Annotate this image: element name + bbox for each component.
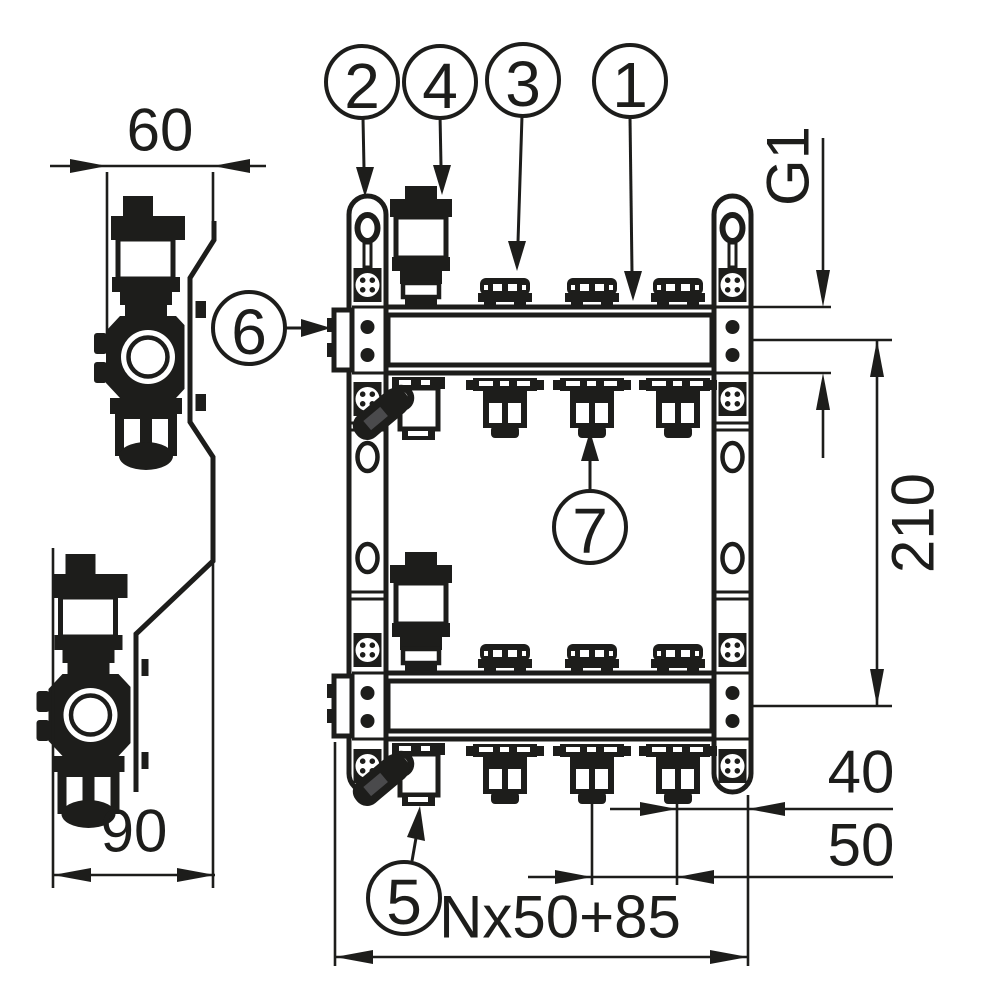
callout-3: 3 bbox=[487, 44, 559, 271]
end-flange-bottom bbox=[327, 676, 352, 736]
beam-edge-lines bbox=[352, 307, 751, 739]
callout-5: 5 bbox=[368, 806, 440, 938]
callout-1: 1 bbox=[594, 45, 666, 301]
callout-5-label: 5 bbox=[386, 866, 422, 938]
mounting-rail-right bbox=[714, 196, 751, 792]
callout-4: 4 bbox=[404, 46, 476, 195]
air-vent-valve-top bbox=[390, 186, 452, 308]
front-view bbox=[327, 186, 751, 811]
callout-1-label: 1 bbox=[612, 49, 648, 121]
dim-40-label: 40 bbox=[828, 739, 895, 806]
callout-4-label: 4 bbox=[422, 50, 458, 122]
callout-7-label: 7 bbox=[572, 495, 608, 567]
callout-6-label: 6 bbox=[231, 296, 267, 368]
dimension-210: 210 bbox=[750, 340, 947, 706]
dim-90-label: 90 bbox=[101, 798, 168, 865]
dim-50-label: 50 bbox=[828, 812, 895, 879]
manifold-technical-drawing: 60 90 bbox=[0, 0, 1000, 1000]
end-flange-top bbox=[327, 310, 352, 370]
dim-g1-label: G1 bbox=[755, 126, 822, 206]
mounting-rail-left bbox=[349, 196, 386, 792]
dim-60-label: 60 bbox=[127, 97, 194, 164]
side-view: 60 90 bbox=[37, 97, 267, 889]
outlet-fittings-bottom-beam bbox=[466, 744, 717, 804]
dim-total-label: Nx50+85 bbox=[439, 884, 681, 951]
valve-caps-bottom-beam bbox=[478, 644, 705, 673]
callout-7: 7 bbox=[554, 431, 626, 567]
dimension-g1: G1 bbox=[753, 126, 831, 458]
technical-drawing-page: 60 90 bbox=[0, 0, 1000, 1000]
dim-210-label: 210 bbox=[880, 473, 947, 573]
callout-3-label: 3 bbox=[505, 48, 541, 120]
air-vent-valve-bottom bbox=[390, 552, 452, 674]
callout-2-label: 2 bbox=[344, 50, 380, 122]
dimension-50: 50 bbox=[528, 801, 894, 885]
manifold-beam-bottom-inner bbox=[388, 681, 712, 731]
callout-6: 6 bbox=[213, 292, 331, 368]
outlet-fittings-top-beam bbox=[466, 378, 717, 438]
valve-caps-top-beam bbox=[478, 278, 705, 307]
callout-2: 2 bbox=[326, 46, 398, 197]
manifold-beam-top-inner bbox=[388, 315, 712, 365]
